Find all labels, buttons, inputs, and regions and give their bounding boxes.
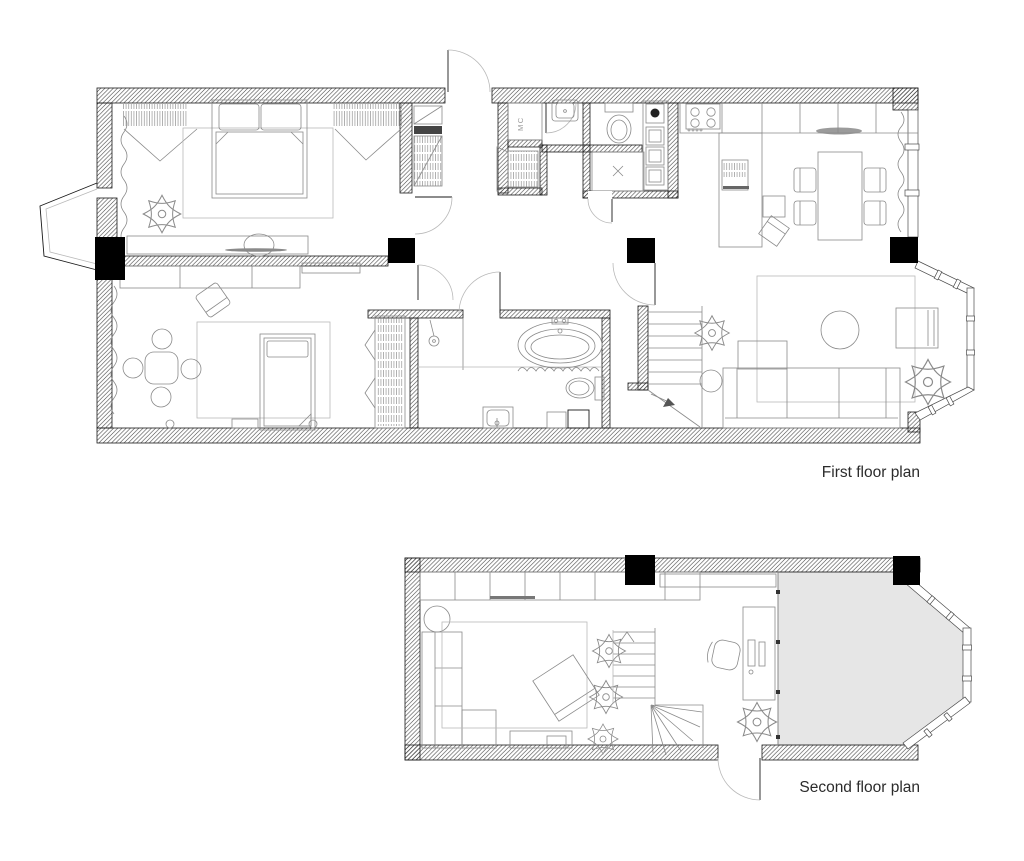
desk-chair [195, 282, 231, 318]
stair-up-arrow [620, 632, 634, 642]
stool [763, 196, 785, 217]
dresser-with-mirror [127, 234, 308, 256]
rug [757, 276, 915, 402]
curtain-fringe [333, 104, 402, 126]
shower [429, 318, 463, 370]
utility-label: MC [516, 116, 525, 131]
second-floor-door [718, 758, 760, 800]
second-floor-plan: Second floor plan [405, 555, 972, 800]
kitchen-counter [680, 103, 918, 133]
curtain-wave [121, 116, 127, 244]
double-bed [212, 100, 307, 198]
armchair [896, 308, 938, 348]
cabinet [547, 412, 566, 428]
toilet [605, 103, 633, 143]
bathroom-sink [483, 407, 513, 428]
right-bay-window [915, 261, 975, 420]
first-floor-walls [97, 88, 920, 443]
sofa [422, 632, 496, 748]
bathtub [518, 318, 602, 368]
curtain-fringe [122, 104, 188, 126]
cabinet-row [420, 572, 700, 600]
cooktop [686, 104, 720, 131]
plant [729, 694, 784, 749]
single-bed [260, 334, 315, 430]
stairs-first-floor [648, 306, 702, 428]
dining-chair [864, 168, 886, 192]
lounge-chair [533, 655, 599, 721]
office-chair [705, 638, 741, 672]
round-table-set [123, 329, 201, 407]
kitchen-peninsula [719, 133, 762, 247]
toilet [566, 377, 604, 400]
floor-plan-page: MC [0, 0, 1024, 861]
dining-table [818, 152, 862, 240]
kitchen-dining [680, 103, 918, 247]
bathroom [418, 318, 604, 428]
second-floor-label: Second floor plan [799, 779, 920, 796]
bench [232, 419, 258, 428]
kitchen-window [898, 110, 919, 237]
living-room [688, 276, 960, 428]
shelf-tower [643, 101, 668, 190]
washing-machine-closet [508, 103, 542, 140]
hall-doors [415, 103, 655, 313]
bedroom-1 [121, 100, 442, 256]
wc-laundry-block: MC [497, 100, 668, 223]
dining-chair [794, 168, 816, 192]
side-table [700, 370, 722, 392]
hall-closet-shelves [414, 106, 442, 186]
second-floor-lounge [420, 572, 776, 760]
stool-tilted [759, 216, 790, 247]
plant [135, 187, 188, 240]
range-hood [816, 128, 862, 135]
dining-chair [794, 201, 816, 225]
stairs-second-floor [613, 628, 703, 755]
monitor [759, 642, 765, 666]
entry-door [448, 50, 490, 92]
first-floor-label: First floor plan [822, 464, 920, 481]
floor-plan-drawing: MC [0, 0, 1024, 861]
first-floor-plan: MC [40, 50, 975, 481]
wardrobe [365, 316, 405, 428]
monitor [748, 640, 755, 666]
cabinet [568, 410, 589, 428]
rug [183, 128, 333, 218]
stair-direction-arrow [663, 398, 675, 407]
dining-chair [864, 201, 886, 225]
sofa [723, 341, 900, 428]
side-table [424, 606, 450, 632]
shelf [660, 574, 776, 587]
curtain-wave [898, 112, 904, 232]
bedroom-2 [111, 263, 405, 430]
plant [688, 309, 737, 358]
shower-cabin [588, 152, 644, 223]
rug [442, 622, 587, 728]
coffee-table [821, 311, 859, 349]
desk [120, 263, 360, 288]
left-bay-window [40, 183, 97, 270]
office-area [705, 607, 784, 750]
rug [197, 322, 330, 418]
